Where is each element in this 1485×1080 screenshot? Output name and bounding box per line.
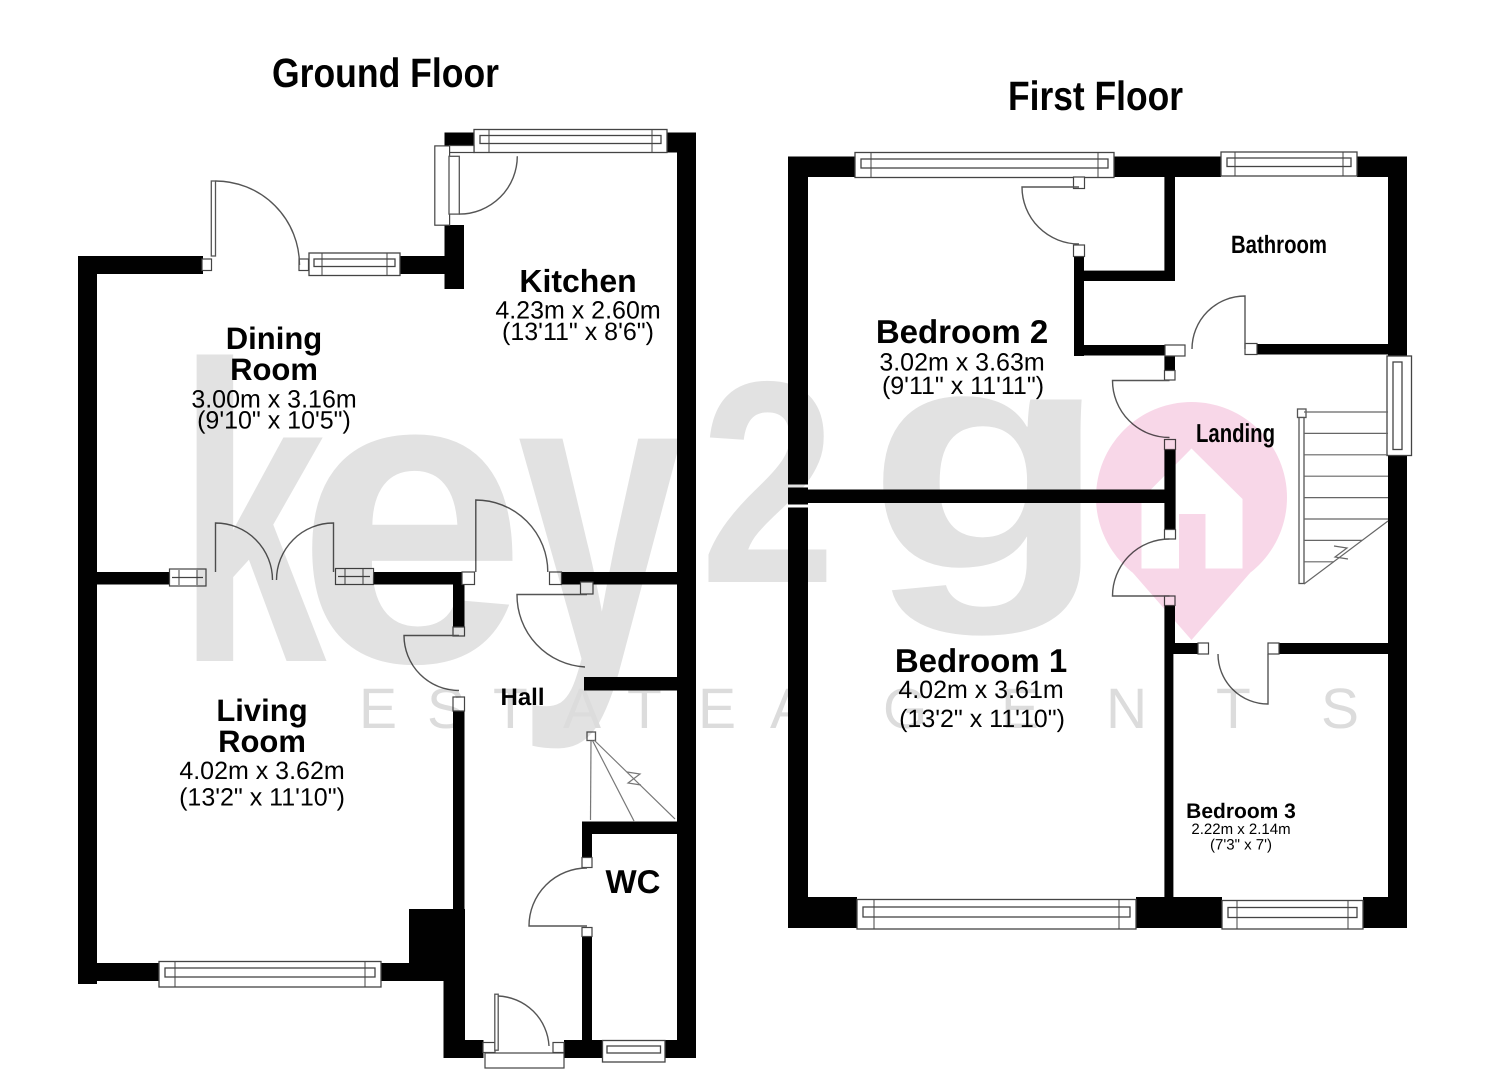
svg-text:WC: WC (606, 863, 661, 900)
svg-text:S: S (427, 677, 465, 741)
svg-text:(7'3" x 7'): (7'3" x 7') (1210, 837, 1272, 854)
svg-text:A: A (563, 677, 601, 741)
svg-text:E: E (1001, 677, 1039, 741)
svg-text:g: g (867, 279, 1108, 638)
svg-text:T: T (493, 677, 528, 741)
svg-text:Ground Floor: Ground Floor (272, 50, 499, 96)
svg-text:N: N (1106, 677, 1147, 741)
svg-text:Bedroom 3: Bedroom 3 (1186, 800, 1296, 823)
svg-text:T: T (627, 677, 662, 741)
svg-text:Bedroom 1: Bedroom 1 (895, 642, 1067, 679)
svg-text:A: A (770, 677, 808, 741)
svg-text:2: 2 (700, 322, 836, 644)
svg-text:E: E (698, 677, 736, 741)
svg-text:Bathroom: Bathroom (1231, 231, 1327, 259)
svg-text:S: S (1321, 677, 1359, 741)
svg-text:(13'2" x 11'10"): (13'2" x 11'10") (179, 784, 345, 812)
svg-text:4.02m x 3.62m: 4.02m x 3.62m (179, 757, 344, 785)
svg-text:2.22m x 2.14m: 2.22m x 2.14m (1191, 821, 1290, 838)
svg-text:First Floor: First Floor (1008, 73, 1183, 119)
svg-text:T: T (1216, 677, 1251, 741)
svg-text:G: G (883, 677, 927, 741)
svg-text:E: E (359, 677, 397, 741)
